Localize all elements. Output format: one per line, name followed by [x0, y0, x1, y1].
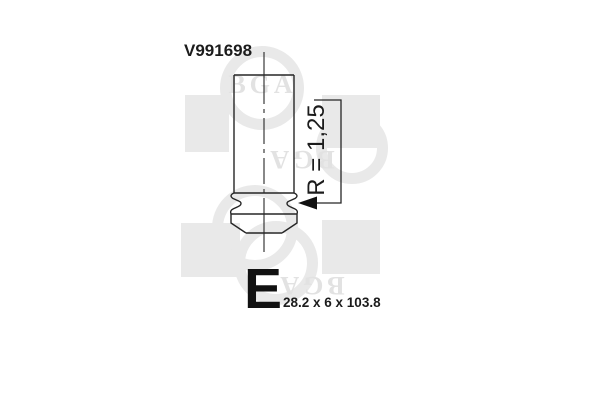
valve-drawing: [0, 0, 600, 400]
valve-category-letter: E: [244, 261, 281, 318]
valve-diagram-page: BGA BGA BGA V991698 R = 1,25 E 28.2 x 6 …: [0, 0, 600, 400]
part-number: V991698: [184, 41, 252, 61]
radius-dimension-label: R = 1,25: [303, 94, 331, 206]
valve-neck-right: [287, 193, 297, 214]
valve-size-text: 28.2 x 6 x 103.8: [283, 295, 381, 310]
valve-neck-left: [231, 193, 241, 214]
